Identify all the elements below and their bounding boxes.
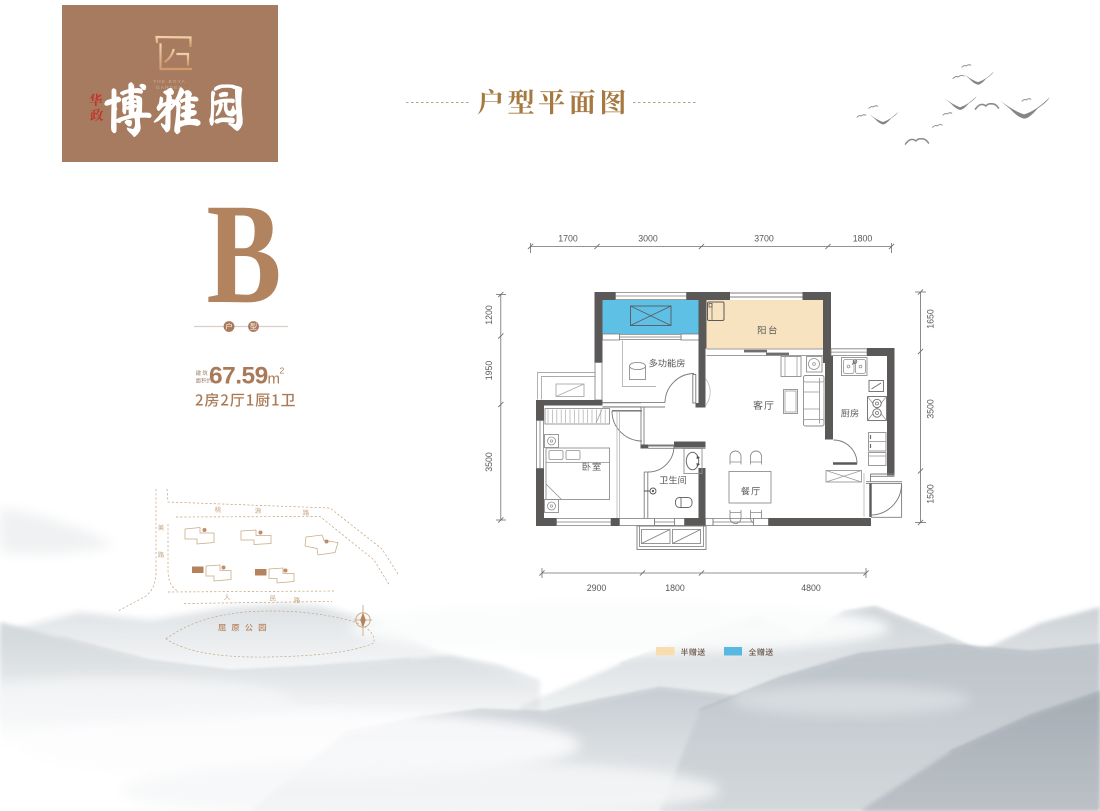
svg-text:1650: 1650 [926,309,936,329]
svg-text:1800: 1800 [665,583,685,593]
svg-text:67.59: 67.59 [209,363,268,390]
svg-text:B: B [207,174,282,333]
svg-text:1800: 1800 [853,234,873,244]
svg-text:THE BOYA: THE BOYA [153,79,186,85]
svg-text:3000: 3000 [638,234,658,244]
svg-text:1950: 1950 [484,361,494,381]
svg-text:1200: 1200 [484,305,494,325]
svg-text:1500: 1500 [926,484,936,504]
svg-text:4800: 4800 [801,583,821,593]
svg-text:3700: 3700 [754,234,774,244]
svg-text:m: m [268,371,281,388]
svg-text:3500: 3500 [926,399,936,419]
svg-text:1700: 1700 [558,234,578,244]
svg-text:2900: 2900 [587,583,607,593]
svg-text:2: 2 [280,366,285,376]
svg-text:3500: 3500 [484,452,494,472]
